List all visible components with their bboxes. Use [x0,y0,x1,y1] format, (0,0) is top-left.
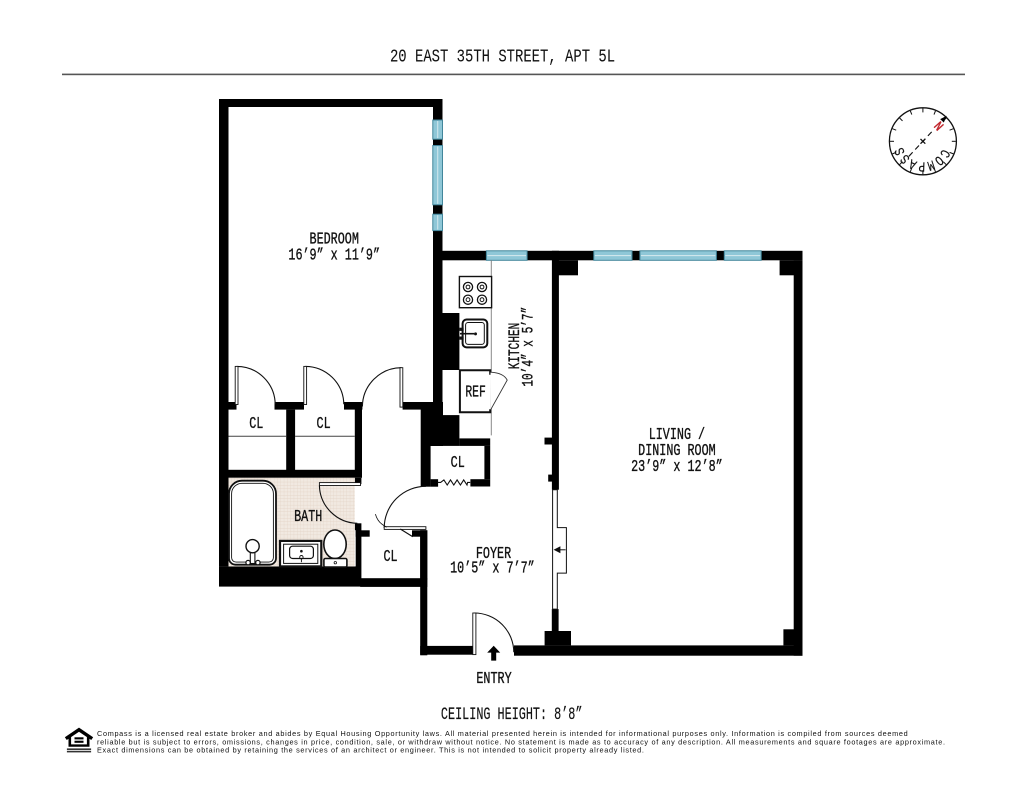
svg-text:N: N [930,119,946,134]
svg-text:10’5” x 7’7”: 10’5” x 7’7” [450,559,535,578]
svg-text:CL: CL [317,415,331,434]
svg-text:CL: CL [249,415,263,434]
svg-text:REF: REF [465,384,486,403]
svg-text:ENTRY: ENTRY [476,670,511,689]
svg-text:23’9” x 12’8”: 23’9” x 12’8” [631,458,723,477]
svg-text:Exact dimensions can be obtain: Exact dimensions can be obtained by reta… [97,746,645,755]
svg-text:CL: CL [383,548,397,567]
svg-text:CEILING HEIGHT: 8’8”: CEILING HEIGHT: 8’8” [441,706,583,725]
svg-text:10’4” x 5’7”: 10’4” x 5’7” [520,307,539,387]
svg-text:16’9” x 11’9”: 16’9” x 11’9” [288,247,380,266]
svg-text:20 EAST 35TH STREET, APT 5L: 20 EAST 35TH STREET, APT 5L [390,47,615,67]
svg-text:CL: CL [451,454,465,473]
svg-text:BATH: BATH [294,508,322,527]
